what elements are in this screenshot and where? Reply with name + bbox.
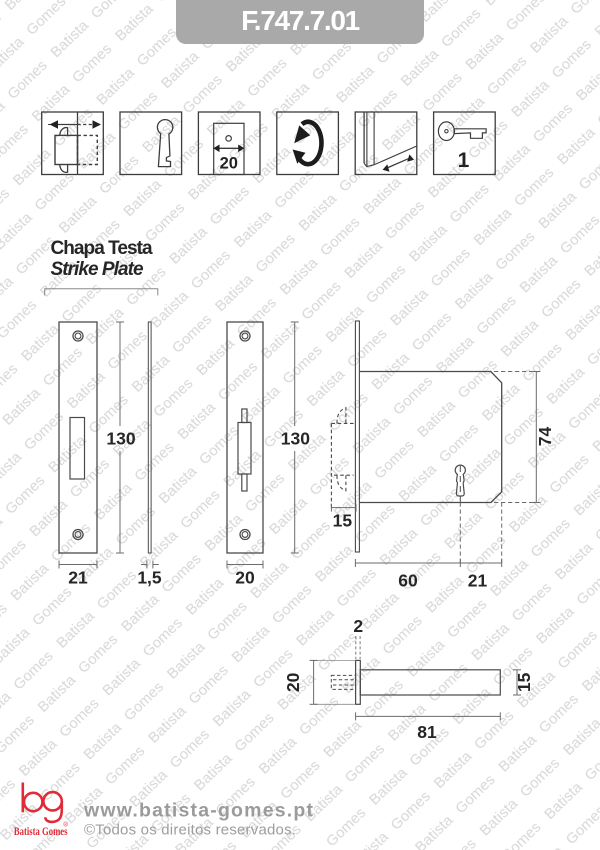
- svg-text:20: 20: [235, 568, 255, 588]
- svg-text:2: 2: [353, 616, 363, 636]
- svg-text:21: 21: [68, 568, 88, 588]
- svg-text:60: 60: [398, 571, 418, 591]
- svg-text:Batista Gomes: Batista Gomes: [14, 824, 68, 838]
- svg-text:21: 21: [468, 571, 488, 591]
- svg-text:20: 20: [283, 672, 303, 692]
- svg-text:1,5: 1,5: [137, 568, 162, 588]
- svg-text:15: 15: [333, 511, 353, 531]
- svg-text:www.batista-gomes.pt: www.batista-gomes.pt: [83, 800, 314, 822]
- svg-text:15: 15: [514, 672, 534, 692]
- svg-text:©Todos os direitos reservados.: ©Todos os direitos reservados.: [84, 822, 296, 839]
- svg-text:20: 20: [220, 155, 238, 173]
- svg-text:1: 1: [458, 149, 470, 172]
- svg-text:130: 130: [106, 429, 135, 449]
- svg-text:74: 74: [535, 427, 555, 447]
- svg-text:81: 81: [417, 722, 437, 742]
- svg-text:130: 130: [281, 429, 310, 449]
